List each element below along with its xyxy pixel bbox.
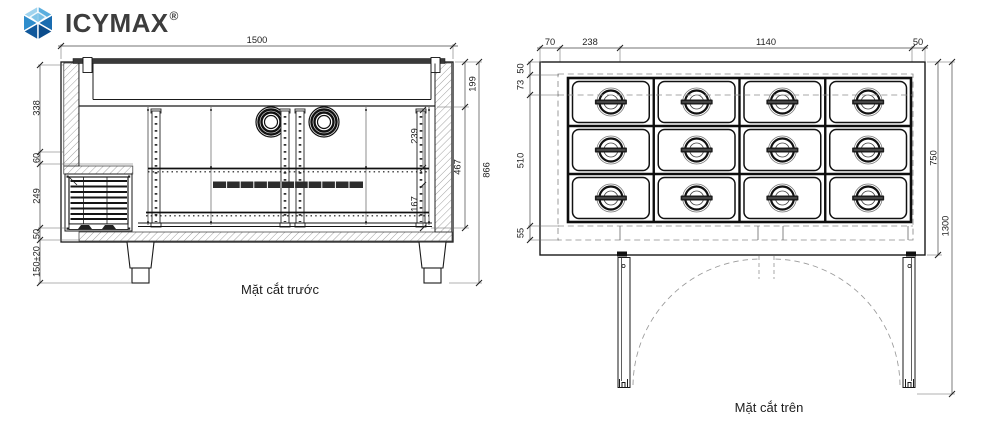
top-view-caption: Mặt cắt trên <box>735 400 804 415</box>
legs <box>127 242 446 283</box>
dim-label-866: 866 <box>481 162 491 178</box>
dim-label-239: 239 <box>409 128 419 144</box>
dim-label-249: 249 <box>31 188 41 204</box>
gn-pan <box>658 82 735 123</box>
dim-label-750: 750 <box>928 150 938 166</box>
dim-label-510: 510 <box>515 153 525 169</box>
gn-pan <box>573 178 650 219</box>
dim-label-150-20: 150±20 <box>31 246 41 277</box>
dim-label-199: 199 <box>467 76 477 92</box>
dim-label-167: 167 <box>409 196 419 212</box>
dim-label-1300: 1300 <box>940 216 950 237</box>
dim-label-338: 338 <box>31 100 41 116</box>
gn-pan <box>573 82 650 123</box>
heater-bar <box>213 182 363 189</box>
dim-label-total-width: 1500 <box>247 36 268 45</box>
gn-pan <box>744 130 821 171</box>
gn-pan <box>830 178 907 219</box>
dim-label-238: 238 <box>582 37 598 47</box>
gn-pan <box>830 130 907 171</box>
door-left-leaf <box>617 252 630 388</box>
door-right-leaf <box>903 252 916 388</box>
counter-top-lid <box>73 59 445 64</box>
front-section-drawing: 1500 <box>28 36 498 304</box>
dim-label-50-top: 50 <box>913 37 923 47</box>
gn-pan <box>573 130 650 171</box>
gn-pan <box>744 178 821 219</box>
dim-label-467: 467 <box>452 159 462 175</box>
gn-pan <box>658 130 735 171</box>
gn-pan <box>658 178 735 219</box>
dim-label-55: 55 <box>515 228 525 238</box>
drawing-sheet: ICYMAX® 1500 <box>0 0 1000 436</box>
door-swing-arcs <box>633 256 900 385</box>
front-dim-top <box>58 43 458 59</box>
dim-label-50-left: 50 <box>515 63 525 73</box>
dim-label-73: 73 <box>515 80 525 90</box>
gn-pan-grid <box>568 78 911 222</box>
dim-label-70: 70 <box>545 37 555 47</box>
gn-pan <box>744 82 821 123</box>
top-section-drawing: 70 238 1140 50 <box>497 36 977 428</box>
dim-label-60: 60 <box>31 153 41 163</box>
dim-label-1140: 1140 <box>756 37 776 47</box>
front-view-caption: Mặt cắt trước <box>241 282 319 297</box>
gn-pan <box>830 82 907 123</box>
dim-label-50: 50 <box>31 229 41 239</box>
registered-mark: ® <box>170 10 179 22</box>
